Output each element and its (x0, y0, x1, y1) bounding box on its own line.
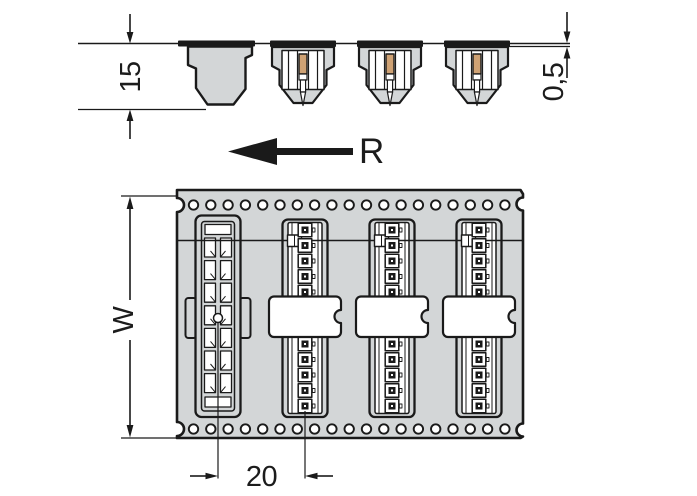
latch-slot (221, 261, 232, 280)
sprocket-hole (241, 424, 250, 433)
sprocket-hole (466, 200, 475, 209)
sprocket-hole (275, 424, 284, 433)
connector-side-2 (357, 41, 423, 106)
unreeling-direction-arrow: R (228, 132, 384, 171)
sprocket-hole (327, 200, 336, 209)
connector-tape-drawing-page: 15 0,5 R (0, 0, 697, 496)
sprocket-hole (327, 424, 336, 433)
sprocket-hole (362, 424, 371, 433)
dimension-W: W (108, 196, 176, 438)
dim-arrowhead-up (564, 47, 571, 59)
sprocket-hole (448, 424, 457, 433)
sprocket-hole (431, 424, 440, 433)
dim-20-label: 20 (246, 461, 277, 493)
dim-15-label: 15 (115, 61, 147, 92)
sprocket-hole (396, 200, 405, 209)
side-view: 15 0,5 R (78, 12, 570, 171)
dim-arrowhead-down (127, 32, 134, 44)
latch-slot (205, 328, 216, 347)
sprocket-hole (310, 424, 319, 433)
latch-slot (221, 351, 232, 370)
sprocket-hole (500, 200, 509, 209)
latch-slot (221, 328, 232, 347)
dim-arrowhead-left (305, 473, 318, 480)
sprocket-hole (414, 424, 423, 433)
sprocket-hole (379, 424, 388, 433)
dim-W-label: W (108, 305, 140, 333)
connector-tape-drawing: 15 0,5 R (0, 0, 697, 496)
dimension-0-5: 0,5 (538, 12, 570, 101)
sprocket-hole (241, 200, 250, 209)
empty-pocket-profile (188, 47, 252, 105)
latch-slot (205, 283, 216, 302)
dimension-15: 15 (78, 14, 206, 139)
dim-arrowhead-right (206, 473, 219, 480)
sprocket-hole (258, 424, 267, 433)
sprocket-hole (448, 200, 457, 209)
sprocket-hole (431, 200, 440, 209)
sprocket-hole (293, 424, 302, 433)
empty-pocket-side (178, 41, 255, 105)
direction-label: R (359, 132, 384, 171)
latch-slot (205, 351, 216, 370)
sprocket-hole (483, 424, 492, 433)
latch-slot (205, 374, 216, 393)
sprocket-hole (223, 424, 232, 433)
sprocket-hole (258, 200, 267, 209)
sprocket-hole (483, 200, 492, 209)
sprocket-hole (275, 200, 284, 209)
sprocket-hole (345, 424, 354, 433)
sprocket-hole (206, 200, 215, 209)
connector-side-3 (444, 41, 510, 106)
dim-0-5-label: 0,5 (538, 63, 570, 102)
latch-slot (221, 374, 232, 393)
sprocket-hole (396, 424, 405, 433)
dim-arrowhead-down (127, 425, 134, 438)
sprocket-hole (362, 200, 371, 209)
direction-arrow-shaft (275, 148, 353, 155)
pocket-top-bar (205, 225, 231, 235)
sprocket-hole (189, 424, 198, 433)
latch-slot (221, 283, 232, 302)
sprocket-hole (223, 200, 232, 209)
sprocket-hole (414, 200, 423, 209)
sprocket-hole (500, 424, 509, 433)
sprocket-hole (466, 424, 475, 433)
sprocket-hole (189, 200, 198, 209)
sprocket-hole (345, 200, 354, 209)
dim-arrowhead-up (127, 110, 134, 122)
latch-slot (205, 261, 216, 280)
dim-arrowhead-down (564, 32, 571, 44)
dim-arrowhead-up (127, 197, 134, 210)
center-hole (214, 314, 223, 323)
sprocket-hole (293, 200, 302, 209)
tape-top-view: W 20 (108, 190, 523, 493)
sprocket-hole (206, 424, 215, 433)
connector-side-1 (270, 41, 336, 106)
direction-arrowhead-left (228, 138, 277, 165)
sprocket-hole (310, 200, 319, 209)
sprocket-hole (379, 200, 388, 209)
